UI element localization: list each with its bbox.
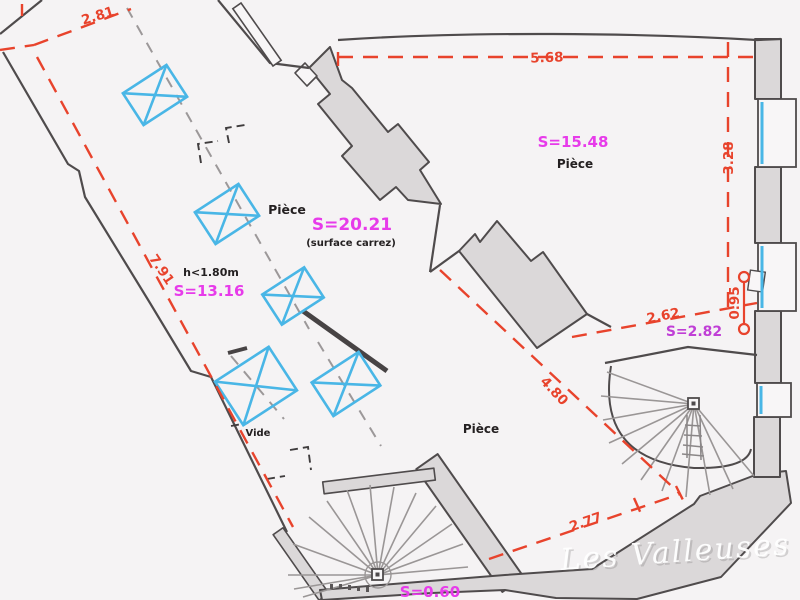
room-label-top-right: Pièce xyxy=(557,157,593,171)
window-bay xyxy=(758,99,796,167)
room-label-attic: Pièce xyxy=(268,202,306,217)
surface-note: (surface carrez) xyxy=(306,238,396,249)
right-wall-segment xyxy=(755,39,781,99)
right-wall-segment xyxy=(755,167,781,243)
right-wall-segment xyxy=(754,417,780,477)
dimension-top-right: 5.68 xyxy=(530,49,564,66)
page: 2.81 7.91 5.68 3.28 2.62 0.95 4.80 2.77 … xyxy=(0,0,800,600)
surface-closet: S=2.82 xyxy=(666,324,722,340)
dimension-right: 3.28 xyxy=(721,141,737,174)
surface-attic-low: S=13.16 xyxy=(174,282,245,300)
surface-attic: S=20.21 xyxy=(312,215,392,235)
surface-top-right: S=15.48 xyxy=(538,133,609,151)
plan-background xyxy=(0,0,800,600)
room-label-bottom: Pièce xyxy=(463,422,499,436)
void-label: Vide xyxy=(246,428,271,439)
surface-stair: S=0.60 xyxy=(400,583,460,600)
dimension-right-small: 0.95 xyxy=(727,286,743,319)
right-wall-segment xyxy=(755,311,781,383)
floor-plan-svg: 2.81 7.91 5.68 3.28 2.62 0.95 4.80 2.77 … xyxy=(0,0,800,600)
low-height-label: h<1.80m xyxy=(183,266,239,279)
